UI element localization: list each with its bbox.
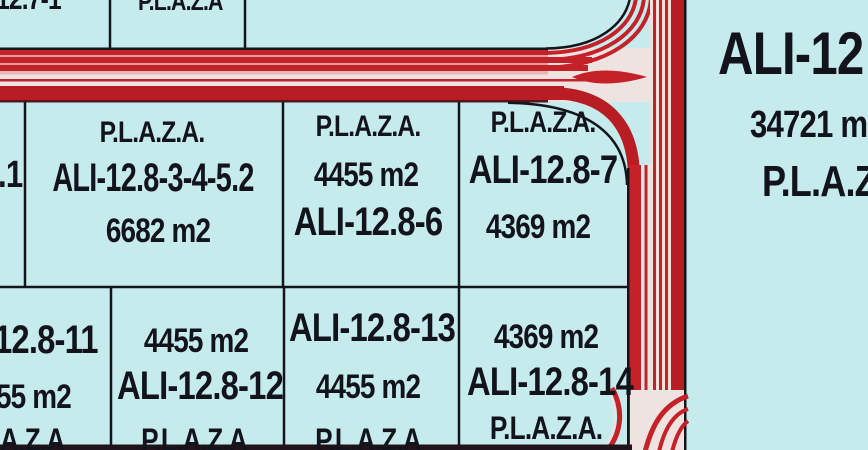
parcel-3452-area-label: 6682 m2 <box>106 214 210 248</box>
parcel-right-large-area-label: 34721 m2 <box>750 106 868 144</box>
parcel-6-plaza-label: P.L.A.Z.A. <box>316 112 421 142</box>
parcel-7-plaza-label: P.L.A.Z.A. <box>491 108 596 138</box>
parcel-right-large-id-label: ALI-12 <box>718 24 863 84</box>
parcel-right-large-plaza-label: P.L.A.Z.A. <box>762 160 868 204</box>
parcel-13-id-label: ALI-12.8-13 <box>289 308 455 348</box>
parcel-3452-plaza-label: P.L.A.Z.A. <box>100 118 205 148</box>
parcel-13-plaza-label: P.L.A.Z.A <box>315 424 421 450</box>
parcel-11-id-label: 12.8-11 <box>0 320 98 360</box>
parcel-14-area-label: 4369 m2 <box>494 320 598 354</box>
parcel-13-area-label: 4455 m2 <box>316 370 420 404</box>
parcel-top-left-id-label: 12.7-1 <box>0 0 61 15</box>
parcel-11-plaza-label: A.Z.A <box>0 424 64 450</box>
parcel-7-area-label: 4369 m2 <box>486 210 590 244</box>
parcel-14-id-label: ALI-12.8-14 <box>467 362 633 402</box>
cadastral-map: 12.7-1 P.L.A.Z.A ALI-12 34721 m2 P.L.A.Z… <box>0 0 868 450</box>
parcel-3452-id-label: ALI-12.8-3-4-5.2 <box>52 158 253 198</box>
parcel-12-id-label: ALI-12.8-12 <box>117 366 283 406</box>
parcel-7-id-label: ALI-12.8-7 <box>469 150 618 190</box>
parcel-6-area-label: 4455 m2 <box>314 158 418 192</box>
parcel-top-center-plaza-label: P.L.A.Z.A <box>138 0 223 14</box>
parcel-12-area-label: 4455 m2 <box>144 324 248 358</box>
parcel-6-id-label: ALI-12.8-6 <box>294 202 443 242</box>
parcel-11-area-label: 55 m2 <box>0 380 71 414</box>
parcel-12-plaza-label: P.L.A.Z.A <box>141 424 247 450</box>
parcel-mid-left-partial-label: .1 <box>0 156 22 194</box>
parcel-14-plaza-label: P.L.A.Z.A. <box>490 412 602 444</box>
